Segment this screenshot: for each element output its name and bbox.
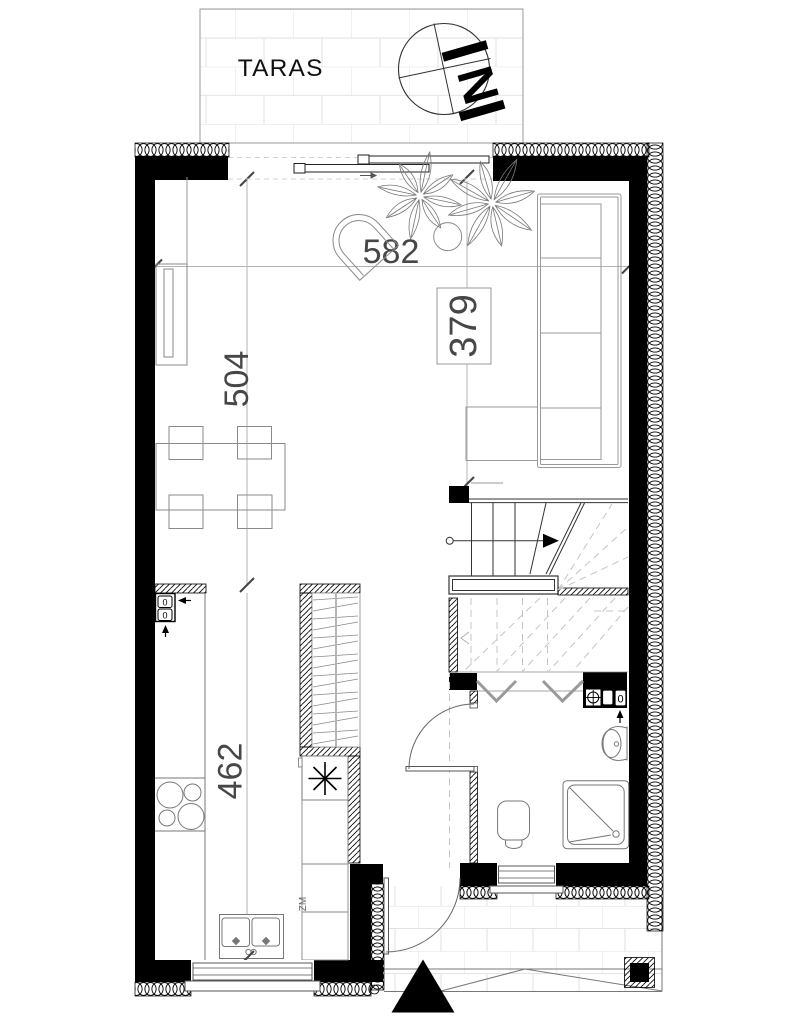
svg-text:TARAS: TARAS bbox=[238, 55, 324, 82]
svg-text:462: 462 bbox=[212, 743, 250, 800]
svg-text:379: 379 bbox=[443, 294, 485, 357]
svg-text:0: 0 bbox=[618, 694, 624, 706]
svg-text:504: 504 bbox=[218, 351, 256, 408]
svg-text:0: 0 bbox=[162, 598, 167, 608]
svg-text:0: 0 bbox=[162, 611, 167, 621]
svg-text:ZM: ZM bbox=[298, 897, 309, 911]
